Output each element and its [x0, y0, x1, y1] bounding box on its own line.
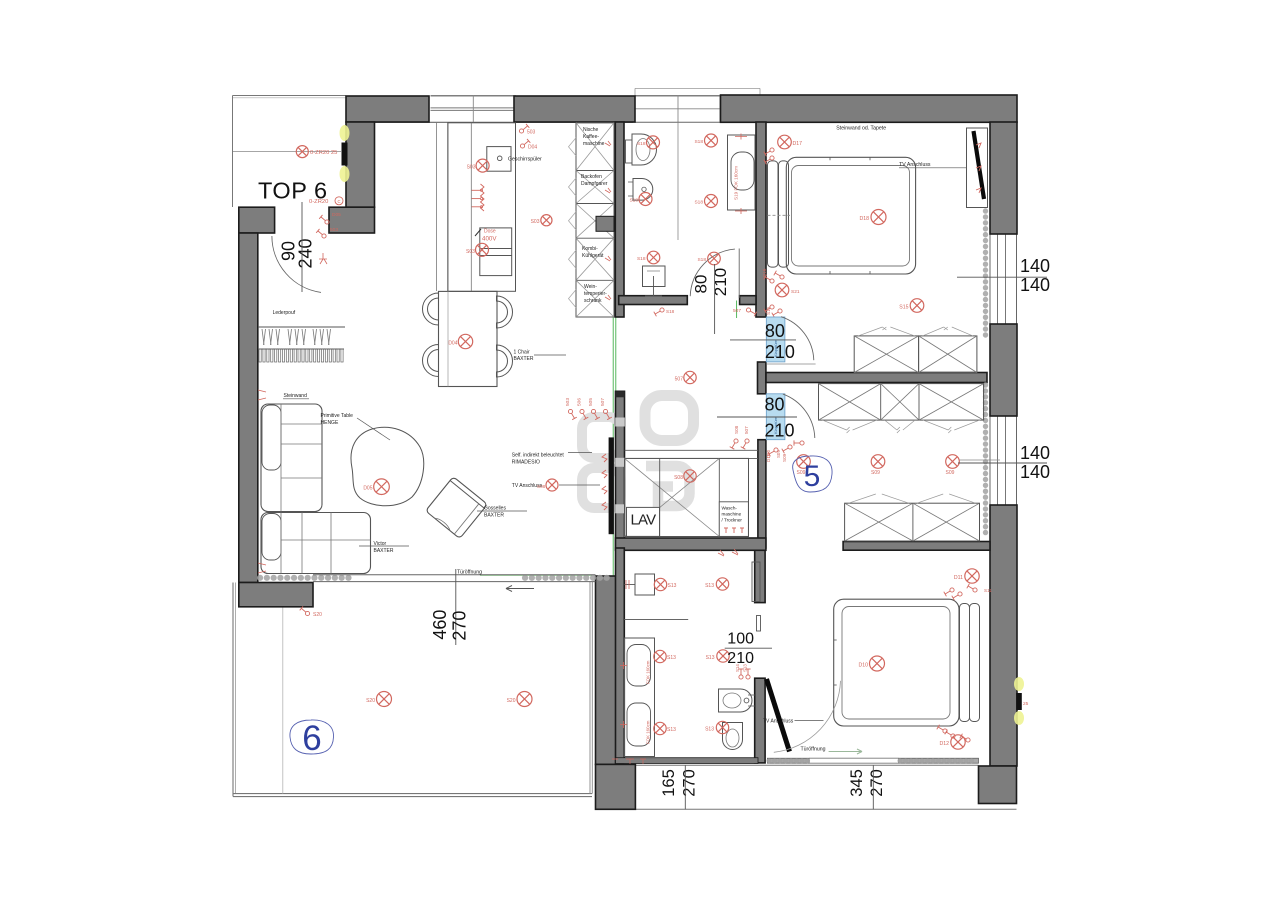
svg-text:270: 270 — [681, 769, 699, 797]
svg-text:Backofen: Backofen — [581, 174, 602, 180]
svg-text:/ Trockner: / Trockner — [722, 518, 743, 523]
svg-text:507: 507 — [675, 377, 684, 383]
svg-text:507: 507 — [733, 308, 741, 314]
svg-text:6: 6 — [302, 719, 321, 758]
svg-text:Türöffnung: Türöffnung — [457, 570, 482, 576]
svg-text:Dampfgarer: Dampfgarer — [581, 181, 608, 187]
svg-text:S11: S11 — [984, 588, 992, 593]
svg-text:S16: S16 — [766, 306, 771, 315]
svg-text:S19 FOK 160cm: S19 FOK 160cm — [734, 166, 739, 200]
svg-text:BAXTER: BAXTER — [484, 513, 504, 519]
svg-text:S09: S09 — [871, 470, 880, 476]
svg-text:S18: S18 — [694, 200, 703, 206]
svg-text:D18: D18 — [859, 216, 869, 222]
svg-text:S18: S18 — [637, 141, 646, 147]
svg-text:270: 270 — [450, 611, 470, 641]
svg-text:80: 80 — [692, 275, 711, 294]
svg-text:Geschirrspüler: Geschirrspüler — [508, 156, 542, 162]
svg-text:210: 210 — [765, 421, 795, 441]
svg-text:C: C — [337, 199, 340, 204]
svg-text:140: 140 — [1020, 256, 1050, 276]
svg-text:S21: S21 — [791, 289, 800, 295]
svg-text:D04: D04 — [448, 341, 457, 347]
svg-text:S03: S03 — [531, 219, 540, 225]
svg-text:Wasch-: Wasch- — [722, 506, 738, 511]
svg-text:D05: D05 — [363, 486, 372, 492]
svg-text:S13: S13 — [706, 655, 715, 661]
svg-text:140: 140 — [1020, 275, 1050, 295]
svg-text:505: 505 — [588, 398, 594, 406]
svg-text:Nische: Nische — [583, 127, 599, 133]
svg-text:5: 5 — [804, 460, 821, 493]
svg-text:S03: S03 — [466, 249, 475, 255]
svg-text:Lederpouf: Lederpouf — [273, 310, 296, 316]
svg-text:507: 507 — [744, 426, 749, 434]
svg-text:345: 345 — [848, 769, 866, 797]
svg-text:S09: S09 — [782, 453, 787, 462]
svg-text:D16: D16 — [762, 268, 767, 277]
svg-text:Steinwand: Steinwand — [284, 393, 308, 399]
svg-text:80: 80 — [765, 394, 785, 414]
svg-text:S08: S08 — [734, 425, 739, 434]
svg-text:LAV: LAV — [631, 512, 657, 529]
svg-text:S20: S20 — [313, 612, 322, 618]
svg-text:165: 165 — [660, 769, 678, 797]
svg-text:S09: S09 — [776, 450, 781, 458]
svg-text:100: 100 — [727, 631, 754, 648]
svg-text:503: 503 — [527, 130, 536, 136]
svg-text:140: 140 — [1020, 443, 1050, 463]
svg-text:maschine: maschine — [583, 141, 605, 147]
svg-text:Self. indirekt beleuchtet: Self. indirekt beleuchtet — [512, 453, 565, 459]
svg-text:Kühlgerät: Kühlgerät — [582, 253, 604, 259]
svg-text:0-ZR20 25: 0-ZR20 25 — [310, 150, 337, 156]
svg-text:Kaffee-: Kaffee- — [583, 134, 599, 140]
svg-text:RIMADESIO: RIMADESIO — [512, 460, 540, 466]
svg-text:S03: S03 — [467, 165, 476, 171]
svg-text:S08: S08 — [537, 484, 546, 489]
svg-text:S13: S13 — [668, 583, 677, 589]
svg-text:460: 460 — [430, 610, 450, 640]
svg-text:270: 270 — [868, 769, 886, 797]
svg-text:S13: S13 — [667, 655, 676, 661]
svg-text:210: 210 — [765, 342, 795, 362]
svg-text:210: 210 — [711, 268, 730, 296]
svg-text:maschine: maschine — [722, 512, 742, 517]
svg-text:D12: D12 — [939, 741, 949, 747]
svg-text:Gosselles: Gosselles — [484, 506, 506, 512]
svg-text:S15: S15 — [899, 305, 908, 311]
svg-text:503: 503 — [565, 398, 571, 406]
svg-text:80: 80 — [765, 321, 785, 341]
svg-text:S08: S08 — [674, 475, 683, 481]
svg-text:S13: S13 — [667, 727, 676, 733]
svg-text:S18: S18 — [666, 309, 675, 314]
svg-text:S18: S18 — [629, 198, 638, 204]
svg-text:140: 140 — [1020, 462, 1050, 482]
svg-text:1 Chair: 1 Chair — [514, 350, 530, 356]
svg-text:400V: 400V — [482, 236, 497, 243]
svg-text:S20: S20 — [507, 698, 516, 704]
svg-text:507: 507 — [600, 398, 606, 406]
svg-text:Wein-: Wein- — [584, 284, 597, 290]
svg-text:FOK 160cm: FOK 160cm — [646, 660, 651, 684]
svg-text:Primitive Table: Primitive Table — [321, 413, 354, 419]
svg-text:FOK 160cm: FOK 160cm — [646, 720, 651, 744]
svg-text:Türöffnung: Türöffnung — [801, 747, 826, 753]
svg-text:BAXTER: BAXTER — [374, 548, 394, 554]
svg-text:210: 210 — [727, 650, 754, 667]
svg-text:BAXTER: BAXTER — [514, 356, 534, 362]
svg-text:240: 240 — [296, 238, 316, 268]
svg-text:S13: S13 — [705, 583, 714, 589]
svg-text:Kombi-: Kombi- — [582, 246, 598, 252]
svg-text:S18: S18 — [697, 257, 706, 263]
svg-text:S13: S13 — [705, 727, 714, 733]
svg-text:D10: D10 — [766, 449, 771, 458]
svg-text:S20: S20 — [366, 698, 375, 704]
svg-text:D10: D10 — [858, 663, 868, 669]
svg-text:506: 506 — [577, 398, 583, 406]
svg-text:Steinwand od. Tapete: Steinwand od. Tapete — [836, 125, 886, 131]
svg-text:25: 25 — [1023, 701, 1029, 707]
svg-text:D17: D17 — [793, 141, 803, 147]
svg-text:Dose: Dose — [484, 229, 496, 235]
svg-text:503: 503 — [330, 227, 338, 233]
svg-text:TV Anschluss: TV Anschluss — [899, 162, 931, 168]
svg-text:S09: S09 — [946, 470, 955, 476]
svg-text:TOP 6: TOP 6 — [258, 178, 328, 204]
svg-text:D05: D05 — [332, 212, 341, 218]
svg-text:HENGE: HENGE — [321, 420, 339, 426]
svg-text:S18: S18 — [637, 256, 646, 262]
svg-text:D04: D04 — [528, 145, 537, 151]
svg-text:schrank: schrank — [584, 298, 602, 304]
svg-text:temperier-: temperier- — [584, 291, 607, 297]
svg-text:D11: D11 — [954, 575, 963, 581]
svg-text:S18: S18 — [694, 139, 703, 145]
